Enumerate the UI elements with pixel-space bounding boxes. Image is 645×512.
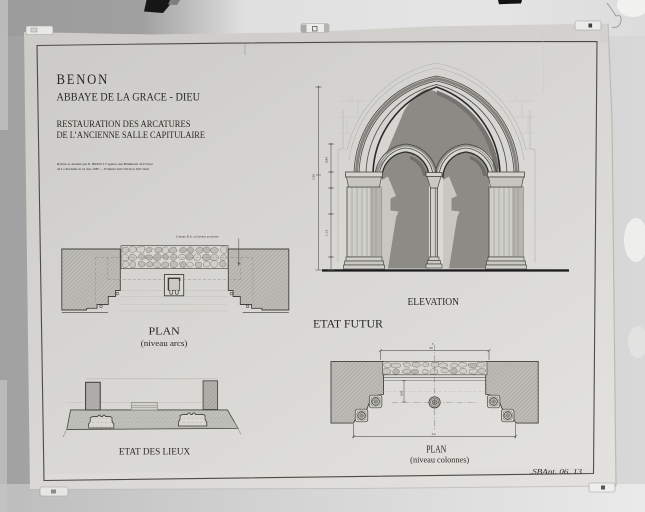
- svg-text:RESTAURATION DES ARCATURES: RESTAURATION DES ARCATURES: [57, 119, 191, 129]
- svg-text:Relevé et dessiné par E. BRUN: Relevé et dessiné par E. BRUN à l’agence…: [57, 162, 154, 166]
- svg-text:ETAT DES LIEUX: ETAT DES LIEUX: [119, 447, 190, 458]
- svg-text:BENON: BENON: [57, 72, 110, 88]
- svg-text:DE L’ANCIENNE SALLE CAPITUL: DE L’ANCIENNE SALLE CAPITULAIRE: [57, 130, 206, 140]
- svg-text:ETAT FUTUR: ETAT FUTUR: [313, 317, 383, 331]
- svg-text:ABBAYE DE LA GRACE - DIEU: ABBAYE DE LA GRACE - DIEU: [57, 92, 201, 104]
- svg-text:ELEVATION: ELEVATION: [408, 297, 460, 308]
- svg-text:.SBAnt. 06. 13: .SBAnt. 06. 13: [530, 468, 583, 476]
- svg-text:PLAN: PLAN: [149, 327, 181, 338]
- svg-text:(niveau colonnes): (niveau colonnes): [410, 456, 469, 465]
- svg-text:90: 90: [430, 346, 434, 350]
- svg-text:(niveau arcs): (niveau arcs): [141, 339, 188, 348]
- svg-text:PLAN: PLAN: [426, 445, 446, 456]
- svg-text:Liteaux B.A. au dessus arcatur: Liteaux B.A. au dessus arcatures: [176, 235, 219, 239]
